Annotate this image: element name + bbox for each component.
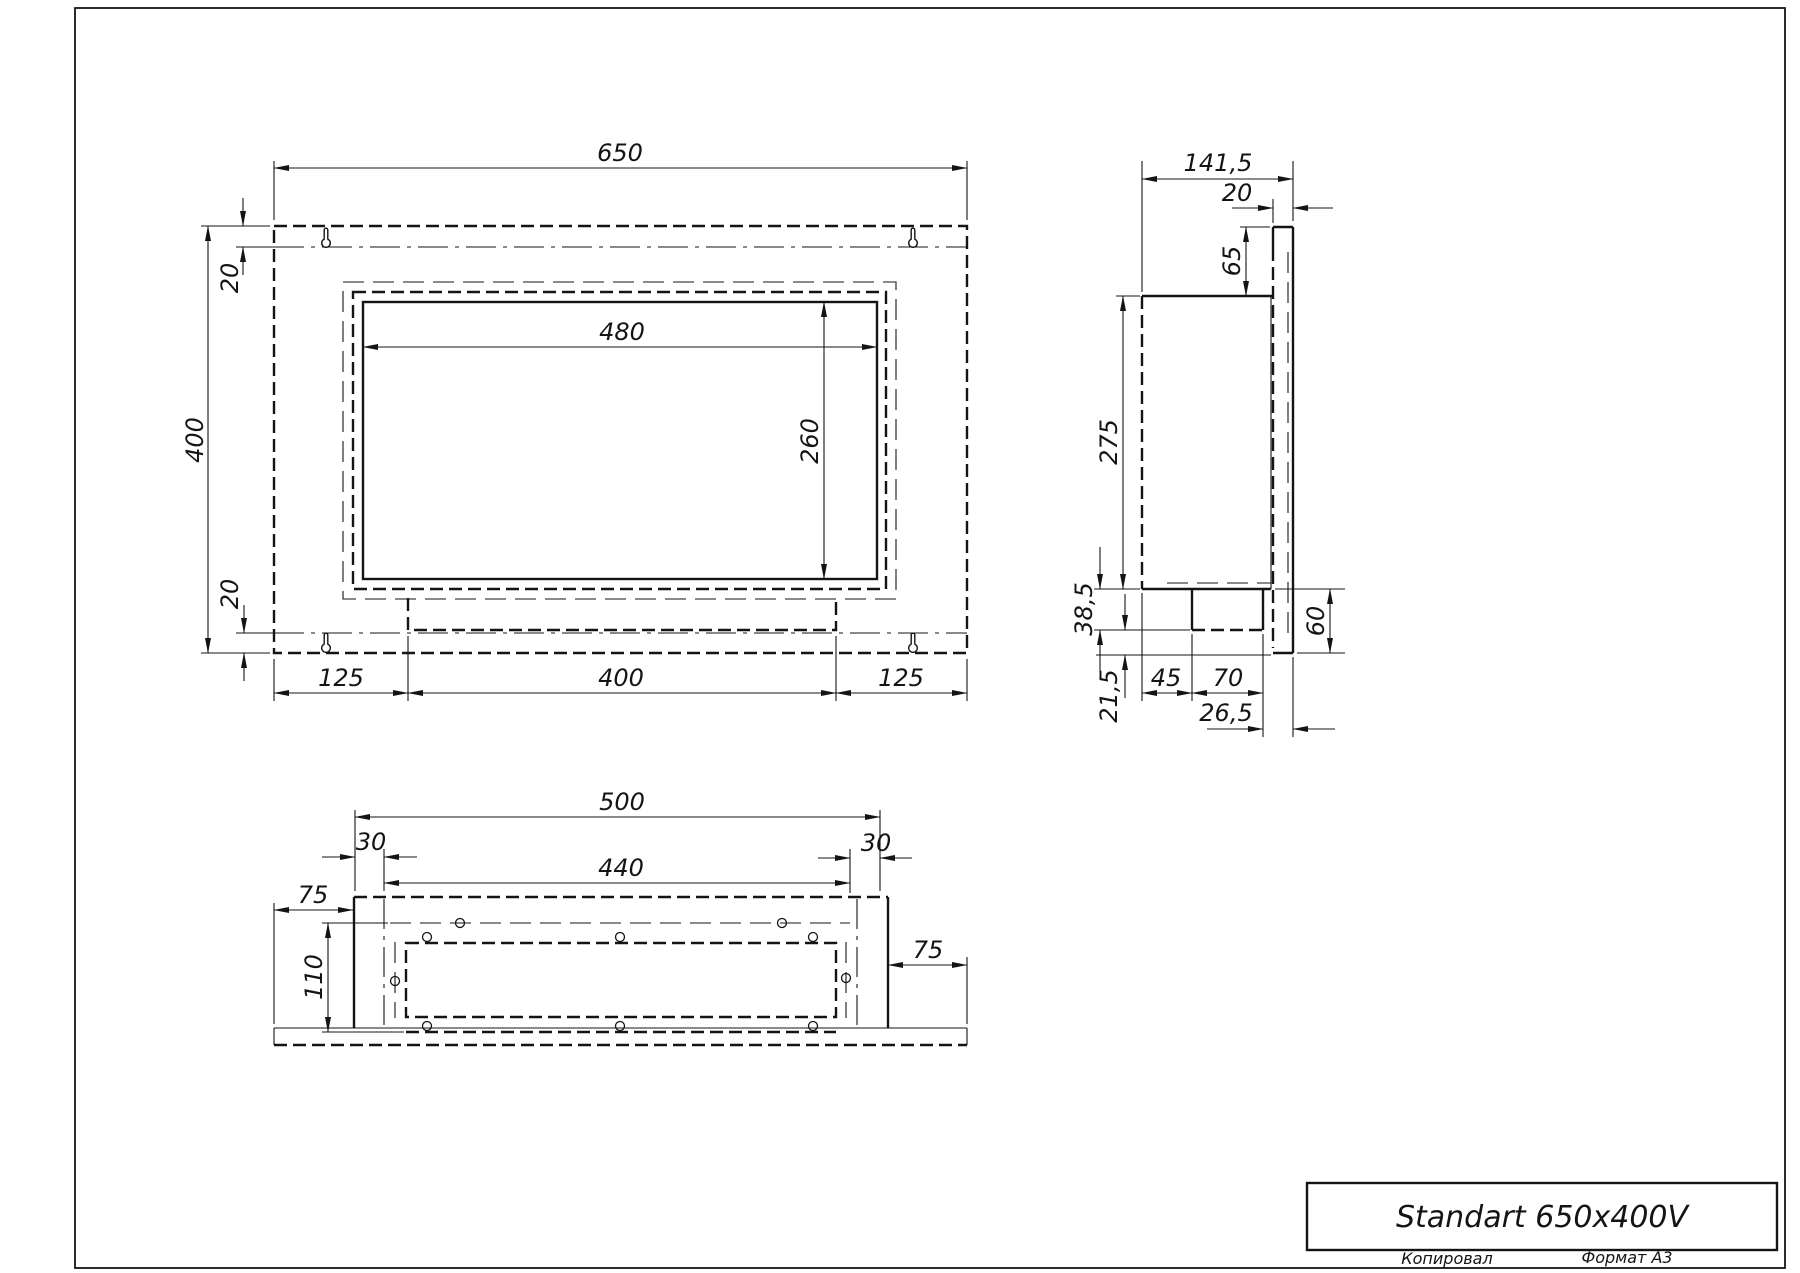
dim-650: 650	[274, 139, 967, 220]
dim-label-400-bottom: 400	[598, 664, 644, 692]
screw-holes	[391, 919, 851, 1031]
dim-label-110: 110	[300, 954, 328, 1000]
sheet-frame	[75, 8, 1785, 1268]
dim-label-70: 70	[1213, 664, 1244, 692]
dim-30-right: 30	[818, 829, 912, 858]
technical-drawing: 650 400 20 20 480	[0, 0, 1800, 1273]
dim-label-480: 480	[599, 318, 645, 346]
dim-110: 110	[300, 923, 404, 1032]
drawing-sheet: 650 400 20 20 480	[0, 0, 1800, 1273]
dim-65: 65	[1218, 227, 1270, 296]
keyhole-top-right	[909, 228, 918, 247]
dim-75-left: 75	[274, 881, 353, 1024]
dim-label-141-5: 141,5	[1184, 149, 1253, 177]
footer-format: Формат А3	[1581, 1248, 1672, 1267]
dim-label-125-left: 125	[318, 664, 364, 692]
side-view: 141,5 20 65 275 38,5	[1070, 149, 1345, 737]
dim-60: 60	[1275, 589, 1345, 653]
dim-label-38-5: 38,5	[1070, 582, 1098, 635]
front-view: 650 400 20 20 480	[181, 139, 967, 701]
dim-label-60: 60	[1302, 606, 1330, 637]
dim-label-26-5: 26,5	[1199, 699, 1252, 727]
dim-20-flange: 20	[1222, 179, 1333, 223]
dim-440: 440	[384, 849, 850, 893]
dim-label-75-right: 75	[913, 936, 944, 964]
dim-label-500: 500	[599, 788, 645, 816]
dim-20-bottom: 20	[216, 579, 274, 681]
dim-480: 480	[363, 318, 877, 347]
dim-label-275: 275	[1095, 419, 1123, 465]
dim-38-5: 38,5	[1070, 547, 1190, 672]
drawing-title: Standart 650x400V	[1396, 1200, 1691, 1235]
dim-label-75-left: 75	[298, 881, 329, 909]
dim-75-right: 75	[888, 936, 967, 1024]
dim-label-20-flange: 20	[1222, 179, 1253, 207]
bottom-tray-hidden-outline	[406, 943, 836, 1017]
keyhole-top-left	[322, 228, 331, 247]
side-tray	[1192, 589, 1263, 630]
dim-label-125-right: 125	[878, 664, 924, 692]
dim-label-30-left: 30	[356, 828, 387, 856]
keyhole-bottom-right	[909, 633, 918, 652]
dim-label-260: 260	[796, 418, 824, 464]
footer-copied-by: Копировал	[1401, 1249, 1492, 1268]
keyhole-bottom-left	[322, 633, 331, 652]
dim-label-440: 440	[598, 854, 644, 882]
dim-bottom-row: 125 400 125	[274, 636, 967, 701]
dim-label-20-top: 20	[216, 263, 244, 294]
dim-label-21-5: 21,5	[1095, 669, 1123, 722]
dim-label-400-height: 400	[181, 417, 209, 463]
title-block: Standart 650x400V	[1307, 1183, 1777, 1250]
dim-275: 275	[1094, 296, 1140, 589]
bottom-view: 500 30 440 30 75 7	[274, 788, 967, 1045]
dim-260: 260	[796, 302, 824, 579]
dim-label-20-bottom: 20	[216, 579, 244, 610]
dim-label-65: 65	[1218, 246, 1246, 277]
dim-20-top: 20	[216, 198, 274, 293]
dim-label-30-right: 30	[861, 829, 892, 857]
dim-label-650: 650	[597, 139, 643, 167]
tray-hidden-outline	[408, 598, 836, 630]
dim-label-45: 45	[1151, 664, 1182, 692]
dim-30-left: 30	[322, 828, 417, 891]
